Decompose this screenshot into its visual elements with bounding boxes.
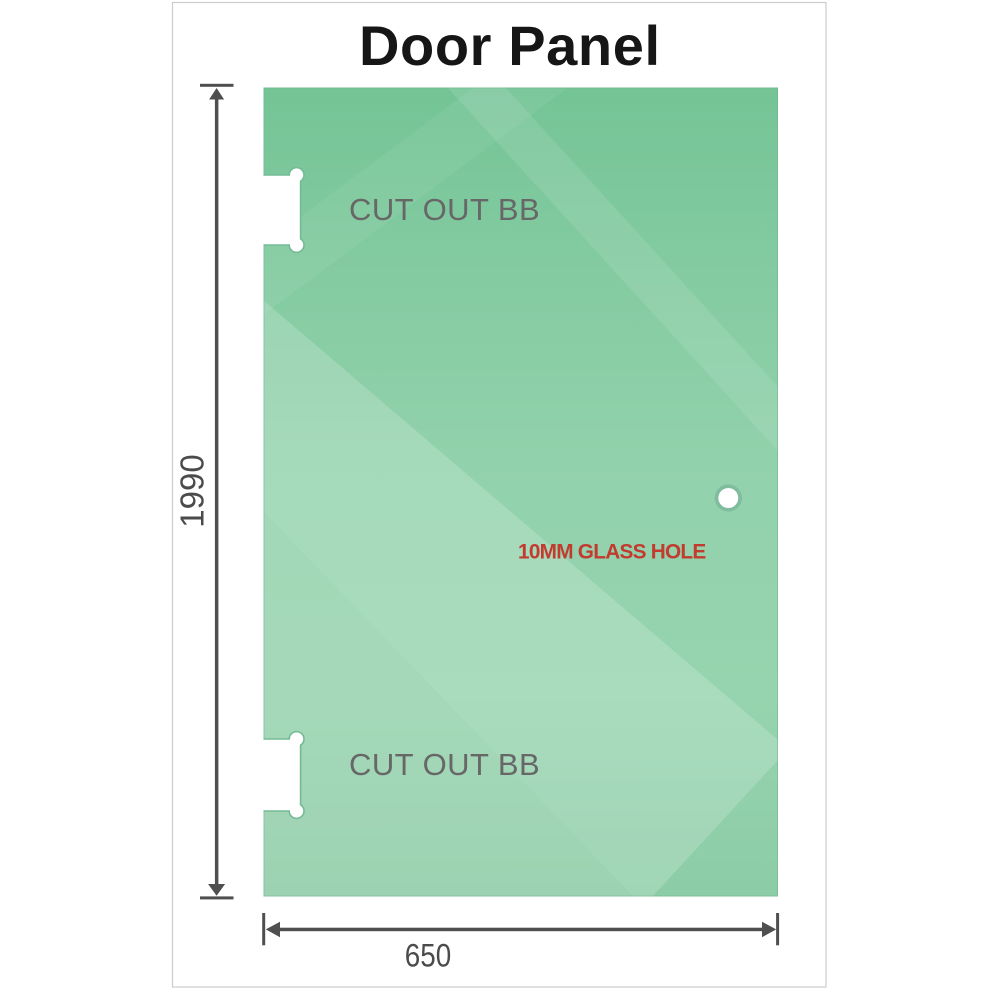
- svg-text:Door Panel: Door Panel: [359, 14, 661, 77]
- svg-text:650: 650: [405, 939, 451, 974]
- svg-text:1990: 1990: [174, 454, 211, 527]
- svg-text:CUT OUT BB: CUT OUT BB: [349, 192, 540, 227]
- svg-text:10MM GLASS HOLE: 10MM GLASS HOLE: [518, 541, 706, 564]
- svg-text:CUT OUT BB: CUT OUT BB: [349, 747, 540, 782]
